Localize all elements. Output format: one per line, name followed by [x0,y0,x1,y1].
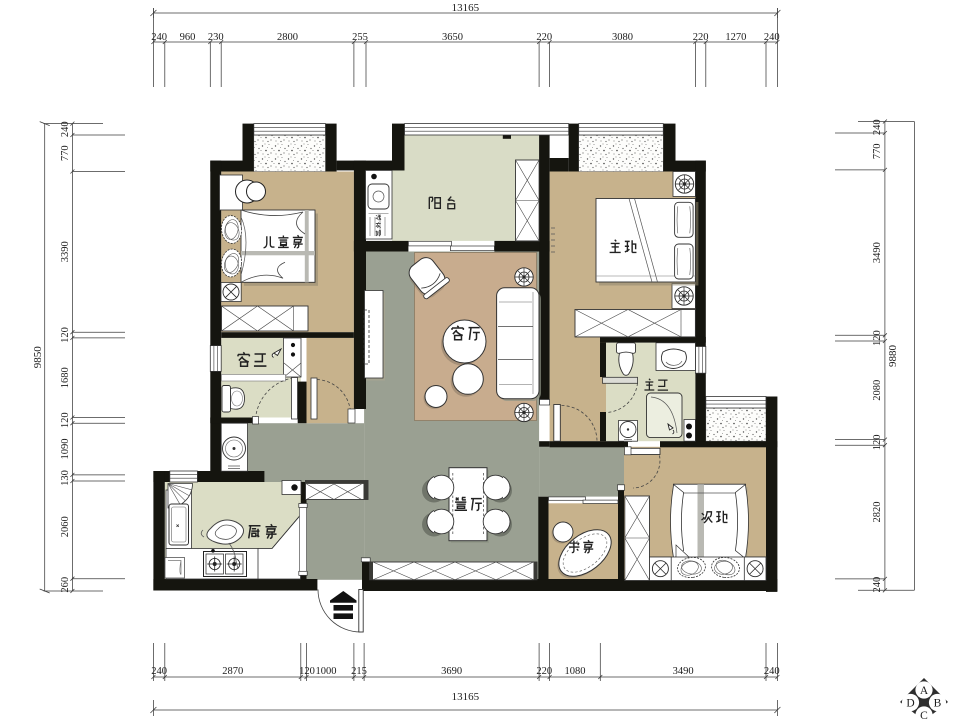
svg-text:2060: 2060 [60,516,71,537]
svg-text:770: 770 [60,145,71,161]
svg-text:3650: 3650 [442,32,463,43]
svg-text:3490: 3490 [673,666,694,677]
svg-text:220: 220 [536,32,552,43]
svg-text:230: 230 [208,32,224,43]
svg-text:120: 120 [299,666,315,677]
svg-text:2800: 2800 [277,32,298,43]
svg-text:1270: 1270 [725,32,746,43]
svg-text:240: 240 [60,121,71,137]
svg-text:3080: 3080 [612,32,633,43]
svg-text:120: 120 [60,412,71,428]
svg-text:120: 120 [872,435,883,451]
svg-text:120: 120 [872,330,883,346]
svg-text:960: 960 [180,32,196,43]
svg-text:220: 220 [693,32,709,43]
svg-text:240: 240 [764,666,780,677]
svg-text:2870: 2870 [222,666,243,677]
svg-text:220: 220 [536,666,552,677]
svg-text:240: 240 [151,666,167,677]
svg-text:1000: 1000 [316,666,337,677]
svg-text:240: 240 [872,119,883,135]
svg-text:240: 240 [764,32,780,43]
svg-text:240: 240 [151,32,167,43]
svg-text:215: 215 [351,666,367,677]
svg-text:770: 770 [872,144,883,160]
svg-text:13165: 13165 [452,691,480,703]
svg-text:3690: 3690 [441,666,462,677]
svg-text:C: C [920,710,928,721]
svg-text:9850: 9850 [32,346,44,369]
svg-text:1080: 1080 [565,666,586,677]
svg-text:255: 255 [352,32,368,43]
svg-text:2820: 2820 [872,502,883,523]
svg-text:130: 130 [60,470,71,486]
svg-text:B: B [934,698,942,710]
svg-text:D: D [906,698,914,710]
svg-text:2080: 2080 [872,380,883,401]
svg-text:120: 120 [60,327,71,343]
svg-text:A: A [920,685,929,697]
svg-text:260: 260 [60,577,71,593]
svg-text:9880: 9880 [887,345,899,368]
svg-text:13165: 13165 [452,2,480,14]
svg-text:3490: 3490 [872,242,883,263]
svg-text:1680: 1680 [60,367,71,388]
svg-text:240: 240 [872,577,883,593]
svg-text:1090: 1090 [60,439,71,460]
svg-text:3390: 3390 [60,241,71,262]
